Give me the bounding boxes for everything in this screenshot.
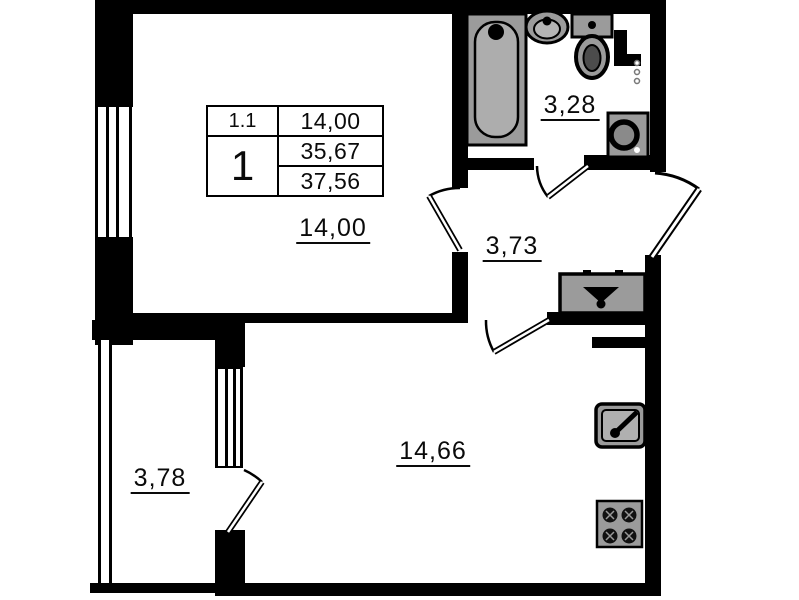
label-bathroom-area: 3,28 — [541, 92, 600, 121]
label-balcony-area: 3,78 — [131, 465, 190, 494]
sink-icon — [526, 11, 568, 43]
area-without-balcony-value: 35,67 — [279, 137, 382, 165]
wall-balcony-top — [92, 320, 225, 340]
window-bedroom-icon — [95, 107, 132, 237]
rooms-count: 1 — [208, 137, 277, 195]
stove-icon — [597, 501, 642, 547]
unit-number: 1.1 — [208, 107, 277, 135]
label-kitchen-living-area: 14,66 — [396, 438, 470, 467]
wall-vent-shaft-horizontal — [614, 54, 641, 66]
wall-balcony-pier-upper — [215, 320, 245, 367]
washing-machine-icon — [608, 113, 648, 157]
wall-top — [95, 0, 666, 14]
total-area-value: 37,56 — [279, 167, 382, 195]
door-balcony — [228, 470, 262, 532]
wall-room-bathroom — [452, 0, 468, 188]
wall-kitchen-stub — [592, 337, 650, 348]
wall-bottom — [215, 583, 661, 596]
door-bathroom — [537, 166, 588, 197]
door-living-room — [486, 320, 549, 352]
apartment-info-table: 1.1 14,00 1 35,67 37,56 — [206, 105, 384, 197]
living-room-area-value: 14,00 — [279, 107, 382, 135]
wardrobe-hanger-icon — [560, 270, 645, 313]
wall-balcony-bottom — [90, 583, 217, 593]
wall-hallway-bottom-right — [547, 312, 661, 325]
wall-bathroom-bottom-right — [584, 155, 650, 170]
door-entrance — [652, 173, 699, 257]
floor-plan: 1.1 14,00 1 35,67 37,56 14,00 3,28 3,73 … — [0, 0, 799, 600]
window-balcony-icon — [215, 367, 243, 468]
kitchen-sink-icon — [596, 404, 645, 447]
wall-right-lower — [645, 255, 661, 593]
wall-left-upper — [95, 0, 133, 107]
toilet-icon — [572, 14, 612, 78]
bathtub-icon — [467, 14, 526, 145]
wall-balcony-left — [98, 340, 112, 583]
label-hallway-area: 3,73 — [483, 233, 542, 262]
door-bedroom — [429, 188, 460, 250]
wall-bathroom-bottom-left — [468, 158, 534, 170]
wall-right-upper — [650, 0, 666, 172]
label-bedroom-area: 14,00 — [296, 215, 370, 244]
